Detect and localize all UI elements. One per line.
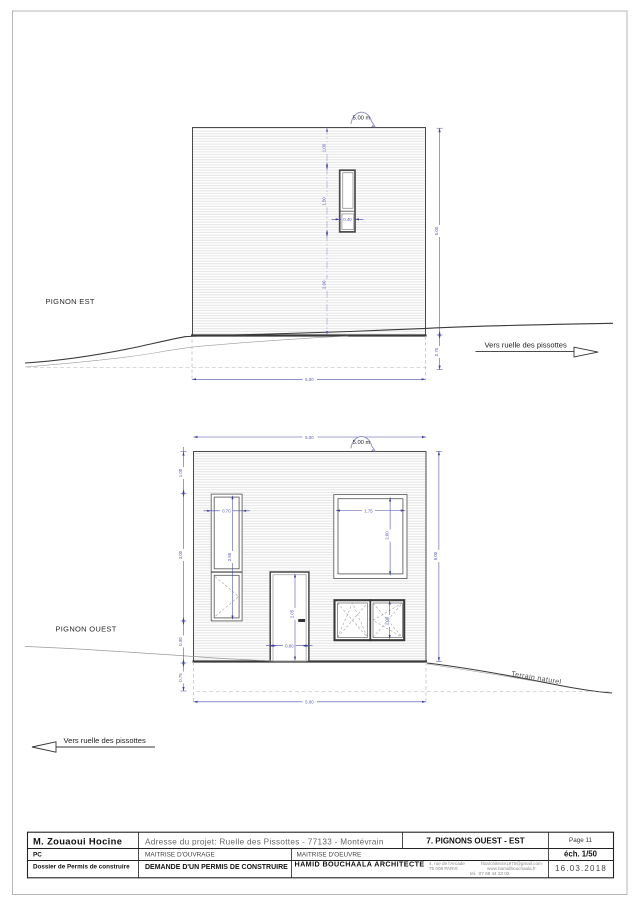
- svg-text:2.65: 2.65: [227, 552, 232, 561]
- svg-text:2.05: 2.05: [290, 609, 295, 618]
- svg-text:2.00: 2.00: [385, 531, 390, 540]
- svg-text:M. Zouaoui Hocine: M. Zouaoui Hocine: [33, 835, 122, 846]
- svg-text:5.00: 5.00: [305, 435, 314, 440]
- svg-text:Adresse du projet: Ruelle des: Adresse du projet: Ruelle des Pissottes …: [145, 837, 384, 846]
- svg-text:1.00: 1.00: [178, 468, 183, 477]
- svg-text:7. PIGNONS OUEST - EST: 7. PIGNONS OUEST - EST: [426, 836, 524, 845]
- svg-text:PIGNON OUEST: PIGNON OUEST: [56, 625, 117, 634]
- svg-text:0.70: 0.70: [222, 509, 231, 514]
- svg-text:MAITRISE D'OEUVRE: MAITRISE D'OEUVRE: [297, 852, 362, 859]
- svg-text:0.40: 0.40: [343, 217, 352, 222]
- svg-text:5.00 m: 5.00 m: [353, 440, 371, 446]
- svg-text:Vers ruelle des pissottes: Vers ruelle des pissottes: [485, 341, 568, 350]
- svg-text:MAITRISE D'OUVRAGE: MAITRISE D'OUVRAGE: [145, 852, 215, 859]
- svg-text:HAMID BOUCHAALA ARCHITECTE: HAMID BOUCHAALA ARCHITECTE: [295, 860, 425, 869]
- svg-text:5.00: 5.00: [305, 377, 314, 382]
- svg-text:5.00: 5.00: [433, 551, 438, 560]
- svg-text:3.00: 3.00: [178, 550, 183, 559]
- svg-text:5.00 m: 5.00 m: [353, 116, 371, 122]
- svg-text:5.00: 5.00: [434, 226, 439, 235]
- svg-text:16.03.2018: 16.03.2018: [555, 864, 607, 873]
- svg-text:1.50: 1.50: [322, 197, 327, 206]
- svg-text:0.90: 0.90: [178, 637, 183, 646]
- svg-text:1.00: 1.00: [322, 143, 327, 152]
- svg-text:0.80: 0.80: [285, 644, 294, 649]
- svg-text:Dossier de Permis de construir: Dossier de Permis de construire: [33, 864, 130, 871]
- svg-text:1.00: 1.00: [384, 616, 389, 625]
- svg-text:tel. 07 68 44 23 02: tel. 07 68 44 23 02: [470, 871, 510, 876]
- svg-text:0.70: 0.70: [434, 347, 439, 356]
- svg-text:1.75: 1.75: [364, 508, 373, 513]
- svg-text:Vers ruelle des pissottes: Vers ruelle des pissottes: [64, 736, 147, 745]
- svg-text:PIGNON EST: PIGNON EST: [46, 297, 95, 306]
- svg-text:5.00: 5.00: [305, 700, 314, 705]
- svg-text:éch. 1/50: éch. 1/50: [564, 849, 598, 858]
- svg-text:2.00: 2.00: [322, 280, 327, 289]
- svg-text:0.75: 0.75: [178, 673, 183, 682]
- svg-text:DEMANDE D'UN PERMIS DE CONSTRU: DEMANDE D'UN PERMIS DE CONSTRUIRE: [145, 864, 288, 871]
- svg-text:75 008 PARIS: 75 008 PARIS: [429, 866, 458, 871]
- svg-text:PC: PC: [33, 852, 42, 859]
- svg-text:Page 11: Page 11: [569, 837, 592, 844]
